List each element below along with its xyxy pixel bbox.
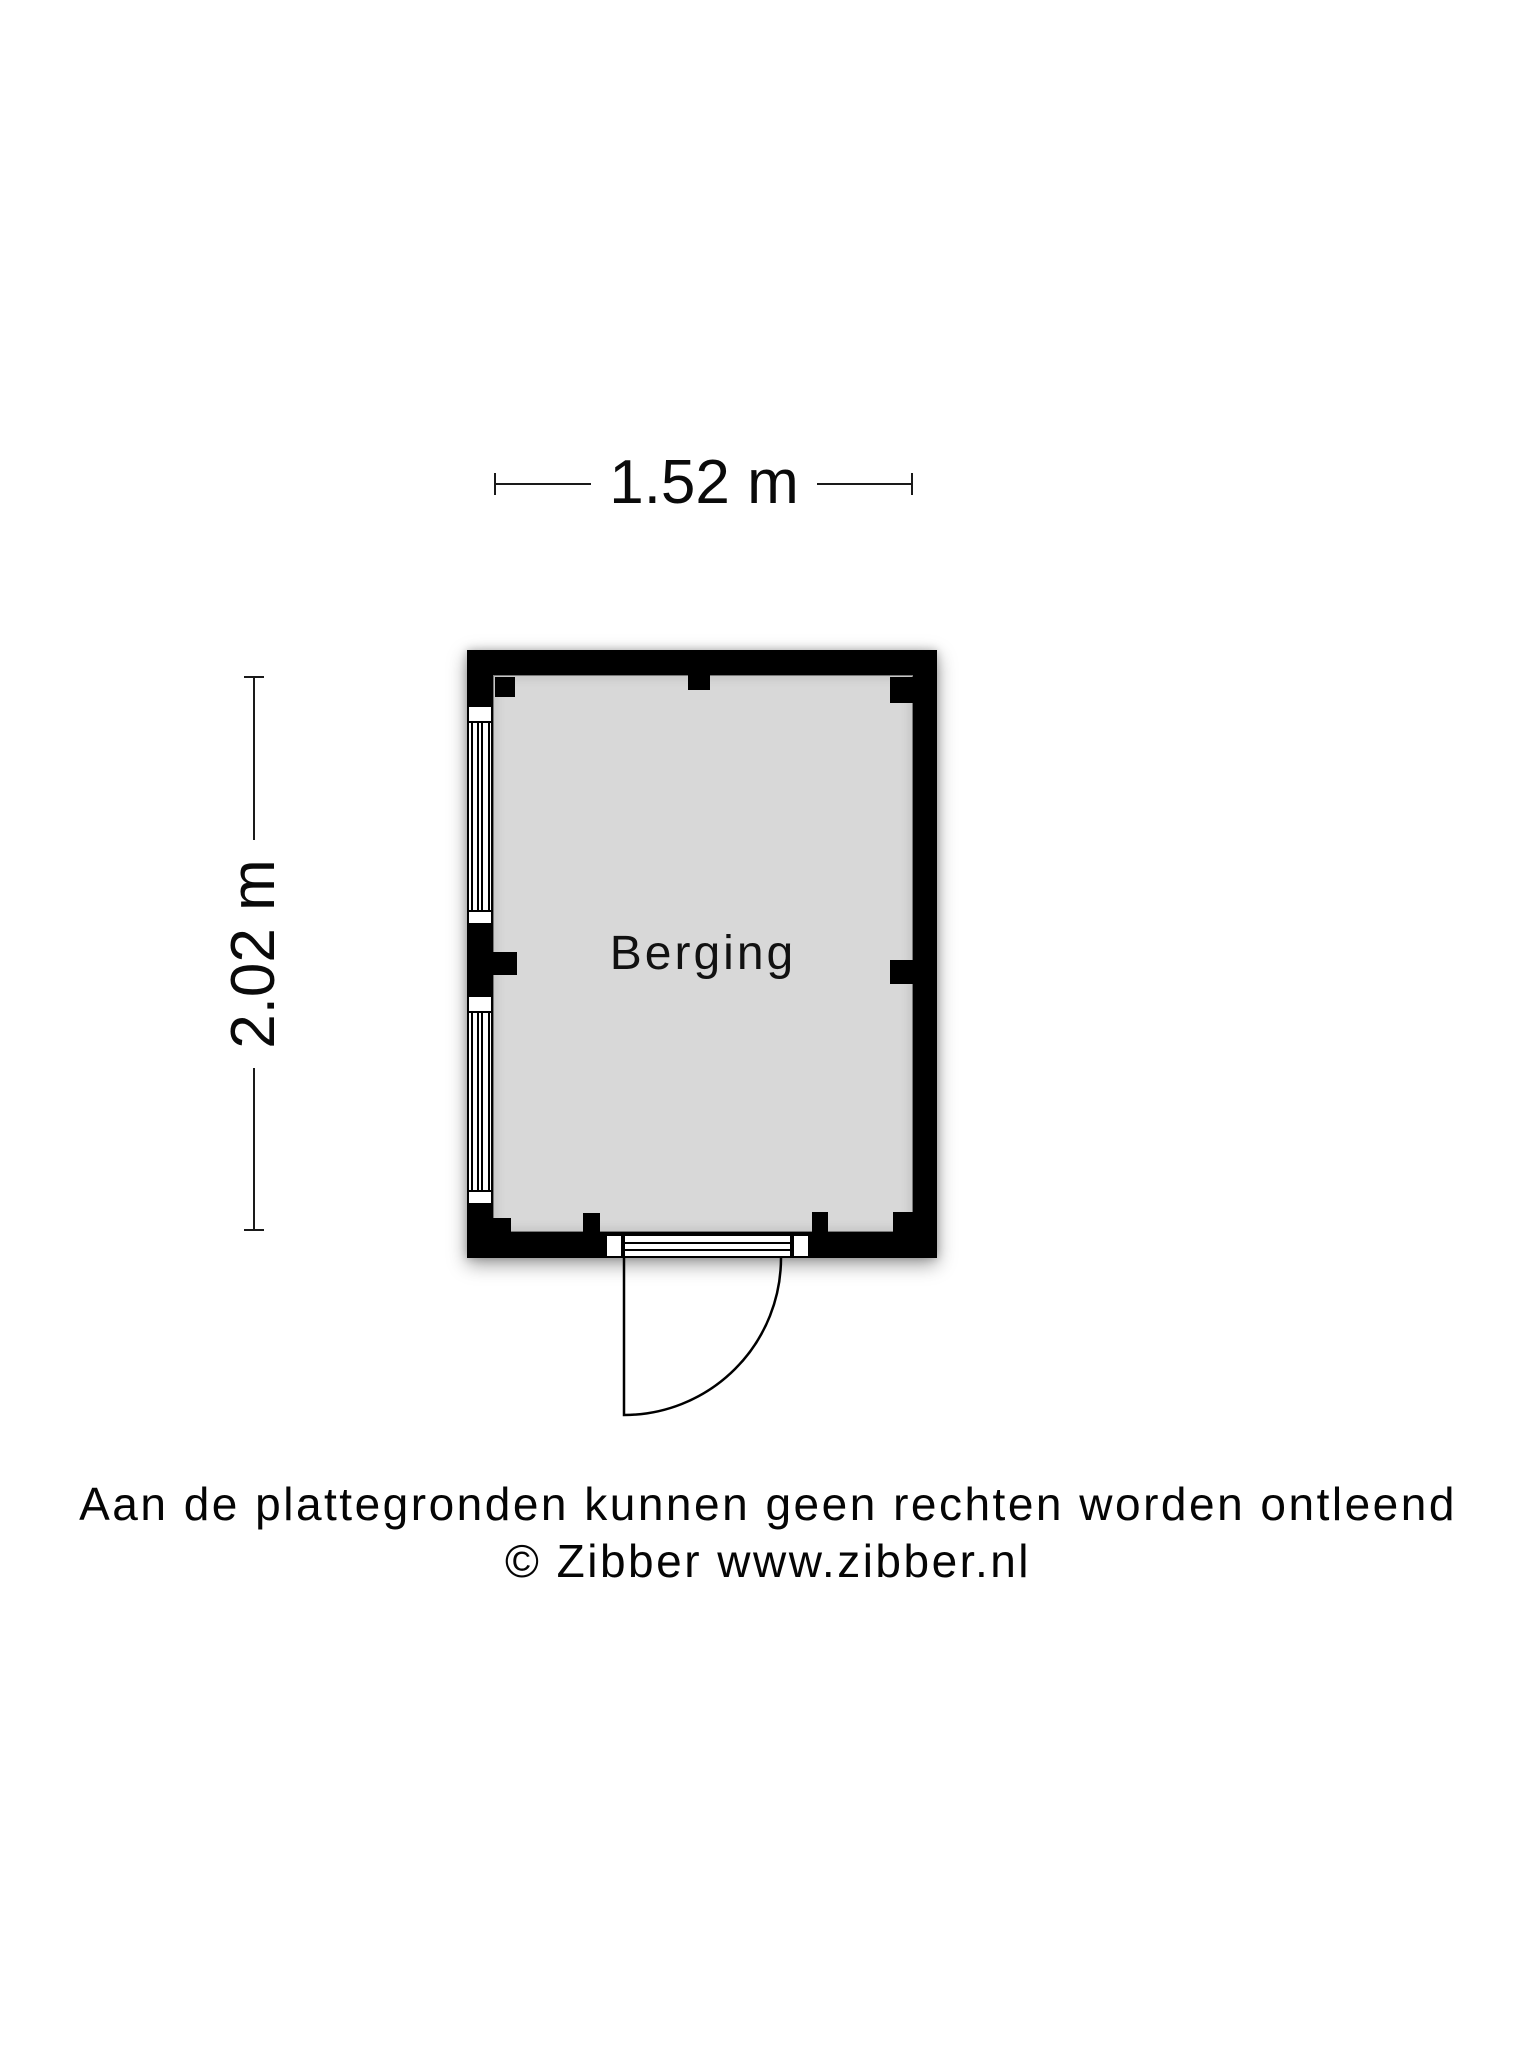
window-left-lower bbox=[467, 995, 493, 1205]
dimension-line bbox=[253, 1068, 255, 1231]
door-threshold-line bbox=[625, 1249, 790, 1251]
door-frame-left bbox=[605, 1234, 623, 1258]
height-dimension-label: 2.02 m bbox=[223, 859, 285, 1049]
wall-post-door-right bbox=[812, 1212, 828, 1233]
wall-post-top-right bbox=[890, 677, 913, 703]
door-frame-right bbox=[792, 1234, 810, 1258]
window-left-upper bbox=[467, 705, 493, 925]
door-threshold-line bbox=[625, 1242, 790, 1244]
floorplan-page: 1.52 m 2.02 m bbox=[0, 0, 1536, 2048]
window-sill bbox=[469, 910, 491, 923]
window-frame-line bbox=[471, 1013, 473, 1190]
wall-post-top-center bbox=[688, 675, 710, 690]
window-frame-line bbox=[481, 1013, 483, 1190]
window-sill bbox=[469, 997, 491, 1013]
window-frame-line bbox=[481, 723, 483, 910]
window-frame-line bbox=[477, 1013, 479, 1190]
room-label: Berging bbox=[493, 930, 913, 978]
window-frame-line bbox=[488, 1013, 490, 1190]
window-frame-line bbox=[488, 723, 490, 910]
window-sill bbox=[469, 707, 491, 723]
footer: Aan de plattegronden kunnen geen rechten… bbox=[0, 1476, 1536, 1590]
window-glass bbox=[469, 723, 491, 910]
wall-post-bottom-right bbox=[893, 1212, 913, 1233]
dimension-tick bbox=[244, 676, 264, 678]
wall-post-top-left bbox=[495, 677, 515, 697]
door-threshold bbox=[623, 1234, 792, 1258]
window-frame-line bbox=[477, 723, 479, 910]
dimension-line bbox=[253, 677, 255, 840]
window-frame-line bbox=[471, 723, 473, 910]
copyright-text: © Zibber www.zibber.nl bbox=[0, 1533, 1536, 1590]
window-glass bbox=[469, 1013, 491, 1190]
dimension-tick bbox=[244, 1229, 264, 1231]
wall-post-bottom-left bbox=[493, 1218, 511, 1232]
wall-post-door-left bbox=[583, 1213, 600, 1233]
window-sill bbox=[469, 1190, 491, 1203]
disclaimer-text: Aan de plattegronden kunnen geen rechten… bbox=[0, 1476, 1536, 1533]
width-dimension-label: 1.52 m bbox=[495, 452, 913, 514]
